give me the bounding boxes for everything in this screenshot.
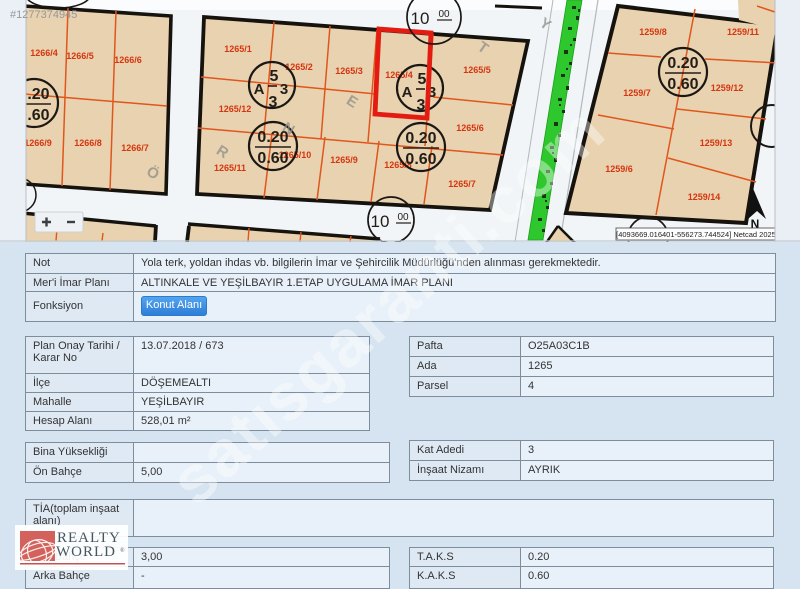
svg-text:1266/5: 1266/5 <box>66 51 94 61</box>
svg-text:1265/5: 1265/5 <box>463 65 491 75</box>
svg-text:1265/12: 1265/12 <box>219 104 252 114</box>
svg-text:1266/9: 1266/9 <box>24 138 52 148</box>
svg-text:3: 3 <box>280 81 288 98</box>
svg-text:WORLD: WORLD <box>56 544 116 560</box>
svg-text:1265/9: 1265/9 <box>330 155 358 165</box>
svg-text:1259/8: 1259/8 <box>639 27 667 37</box>
svg-text:1265/6: 1265/6 <box>456 123 484 133</box>
svg-text:1266/6: 1266/6 <box>114 55 142 65</box>
svg-text:®: ® <box>120 547 125 554</box>
svg-text:[4093669.016401-556273.744524]: [4093669.016401-556273.744524] Netcad 20… <box>616 230 776 239</box>
svg-text:1259/7: 1259/7 <box>623 88 651 98</box>
svg-text:3: 3 <box>269 94 278 111</box>
svg-text:1259/6: 1259/6 <box>605 164 633 174</box>
svg-text:1266/7: 1266/7 <box>121 143 149 153</box>
svg-text:5: 5 <box>418 71 427 88</box>
svg-text:1259/12: 1259/12 <box>711 83 744 93</box>
svg-text:1259/14: 1259/14 <box>688 192 721 202</box>
svg-text:1259/11: 1259/11 <box>727 27 759 37</box>
svg-text:A: A <box>254 81 265 98</box>
svg-text:3: 3 <box>417 97 426 114</box>
svg-text:00: 00 <box>438 9 450 20</box>
svg-text:1259/13: 1259/13 <box>700 138 733 148</box>
svg-text:1265/3: 1265/3 <box>335 66 363 76</box>
svg-text:1266/8: 1266/8 <box>74 138 102 148</box>
svg-text:0.20: 0.20 <box>667 55 698 72</box>
svg-text:5: 5 <box>270 68 279 85</box>
svg-text:10: 10 <box>411 9 430 28</box>
svg-text:0.60: 0.60 <box>405 151 436 168</box>
svg-text:10: 10 <box>371 212 390 231</box>
svg-text:1266/4: 1266/4 <box>30 48 58 58</box>
svg-text:0.60: 0.60 <box>257 150 288 167</box>
svg-text:1265/7: 1265/7 <box>448 179 476 189</box>
svg-text:A: A <box>402 84 413 101</box>
svg-text:1265/1: 1265/1 <box>224 44 252 54</box>
svg-text:1265/11: 1265/11 <box>214 163 246 173</box>
svg-text:0.60: 0.60 <box>667 76 698 93</box>
svg-text:0.20: 0.20 <box>405 130 436 147</box>
svg-text:00: 00 <box>397 212 409 223</box>
